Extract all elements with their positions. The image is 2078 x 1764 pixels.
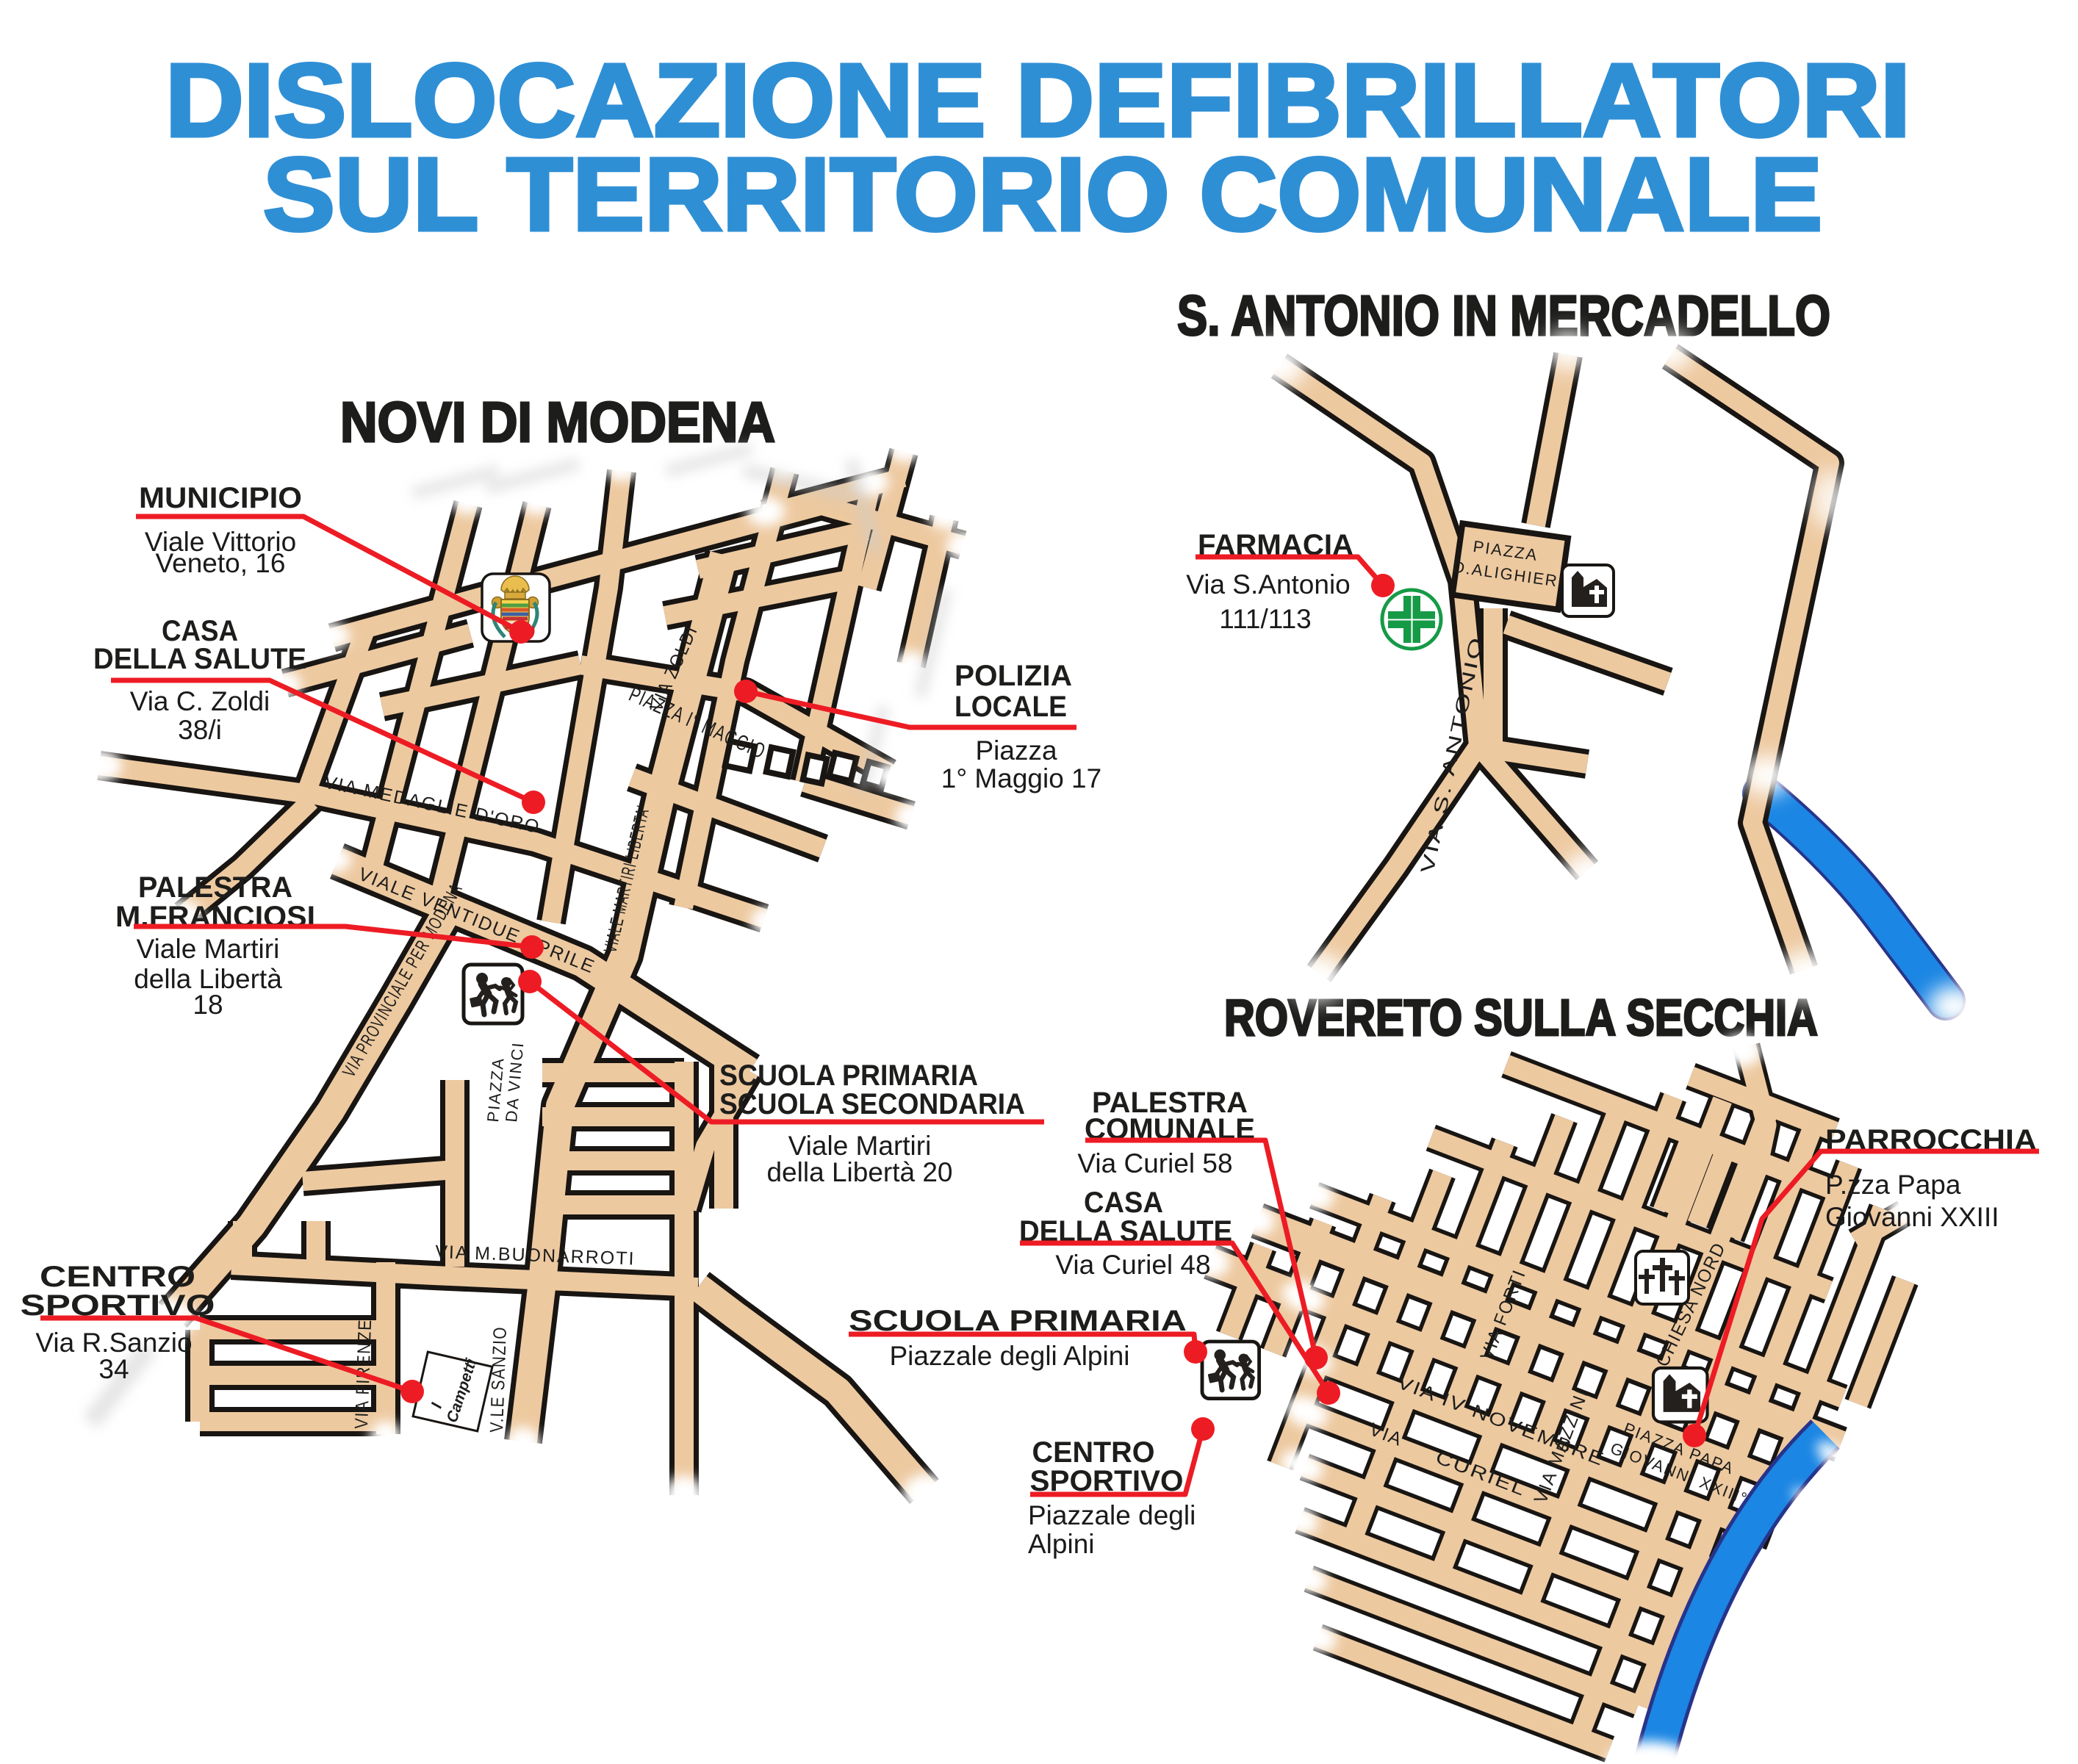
svg-text:LOCALE: LOCALE [954,691,1067,723]
svg-text:Alpini: Alpini [1028,1529,1095,1559]
svg-text:Giovanni XXIII: Giovanni XXIII [1825,1202,1999,1232]
svg-text:Piazzale degli Alpini: Piazzale degli Alpini [889,1341,1129,1371]
svg-text:CASA: CASA [1084,1187,1163,1219]
svg-text:NOVI DI MODENA: NOVI DI MODENA [340,391,775,454]
svg-text:CENTRO: CENTRO [40,1261,195,1293]
svg-text:34: 34 [98,1354,129,1384]
svg-text:Via R.Sanzio: Via R.Sanzio [35,1328,192,1358]
svg-text:P.zza Papa: P.zza Papa [1825,1170,1961,1200]
svg-text:Veneto, 16: Veneto, 16 [156,548,286,578]
svg-text:Viale Martiri: Viale Martiri [137,934,280,964]
svg-text:SUL TERRITORIO COMUNALE: SUL TERRITORIO COMUNALE [263,136,1822,252]
svg-text:Via C. Zoldi: Via C. Zoldi [130,686,270,716]
svg-text:SCUOLA SECONDARIA: SCUOLA SECONDARIA [719,1088,1025,1120]
svg-text:S. ANTONIO IN MERCADELLO: S. ANTONIO IN MERCADELLO [1177,284,1830,348]
svg-text:MUNICIPIO: MUNICIPIO [139,482,302,514]
svg-text:Piazza: Piazza [975,735,1057,766]
svg-text:38/i: 38/i [178,715,222,745]
svg-text:Viale Martiri: Viale Martiri [788,1131,932,1161]
svg-text:Via Curiel 48: Via Curiel 48 [1055,1250,1210,1280]
svg-text:SCUOLA PRIMARIA: SCUOLA PRIMARIA [719,1059,978,1092]
svg-text:18: 18 [193,990,223,1020]
svg-text:POLIZIA: POLIZIA [954,660,1072,692]
svg-text:della Libertà 20: della Libertà 20 [766,1157,952,1187]
svg-text:111/113: 111/113 [1219,604,1312,634]
svg-text:Via S.Antonio: Via S.Antonio [1186,569,1351,600]
svg-text:PALESTRA: PALESTRA [138,871,292,904]
svg-text:1° Maggio 17: 1° Maggio 17 [941,763,1101,793]
svg-text:Piazzale degli: Piazzale degli [1028,1500,1196,1530]
svg-text:CENTRO: CENTRO [1032,1436,1155,1469]
svg-text:DELLA SALUTE: DELLA SALUTE [93,643,306,675]
svg-text:Via Curiel 58: Via Curiel 58 [1077,1148,1232,1178]
